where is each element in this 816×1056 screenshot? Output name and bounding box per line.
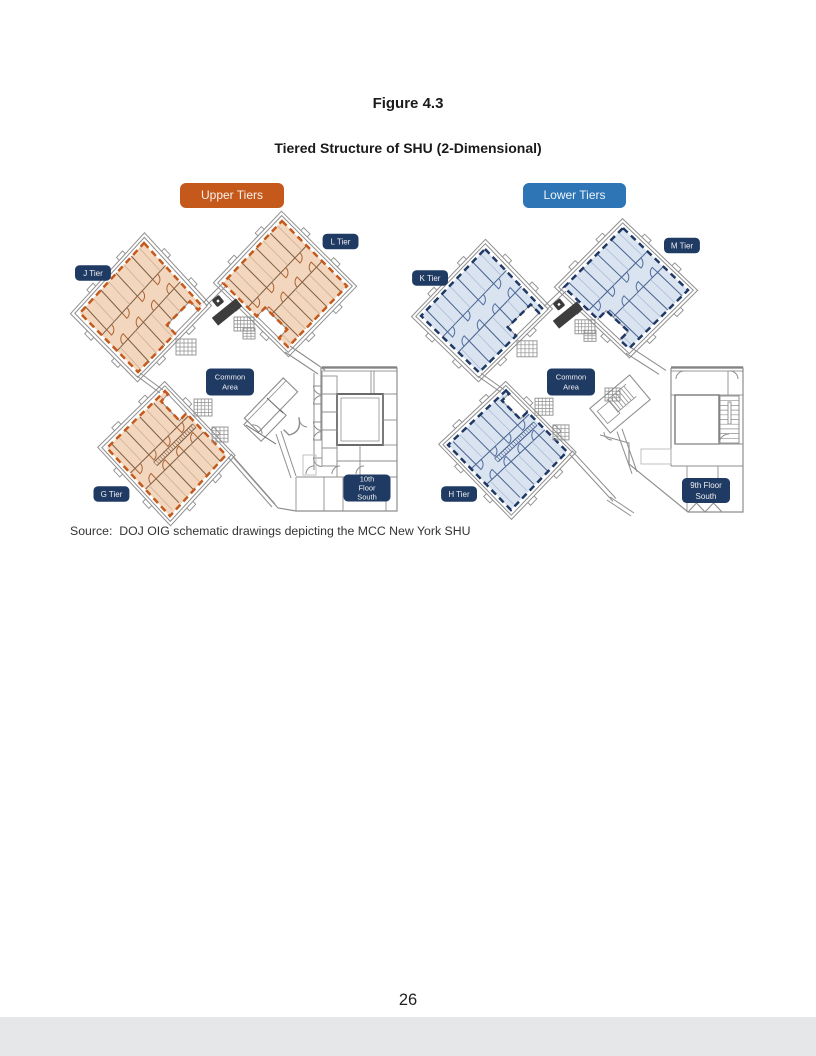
svg-text:9th Floor: 9th Floor [690,481,722,490]
svg-text:J Tier: J Tier [83,269,103,278]
svg-text:Area: Area [563,383,580,392]
svg-text:L Tier: L Tier [331,237,351,246]
svg-text:K Tier: K Tier [420,274,441,283]
svg-text:South: South [696,492,717,501]
svg-text:H Tier: H Tier [448,490,470,499]
svg-text:Common: Common [215,373,245,382]
svg-text:M Tier: M Tier [671,241,694,250]
svg-text:Floor: Floor [358,484,376,493]
svg-text:Common: Common [556,373,586,382]
svg-text:South: South [357,493,377,502]
svg-text:Area: Area [222,383,239,392]
svg-text:G Tier: G Tier [101,490,123,499]
svg-text:10th: 10th [360,475,375,484]
